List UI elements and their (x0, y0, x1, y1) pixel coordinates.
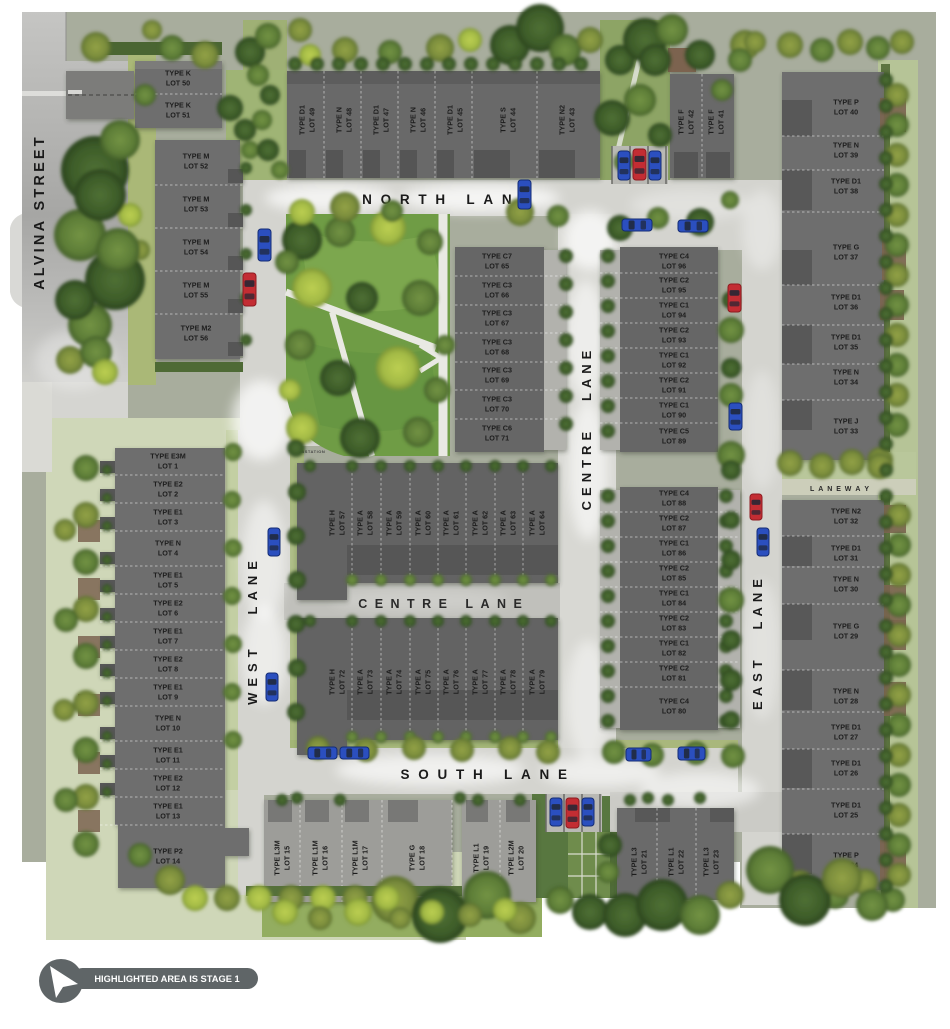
svg-text:LOT 2: LOT 2 (158, 490, 178, 499)
svg-text:TYPE F: TYPE F (707, 109, 716, 135)
svg-text:LOT 49: LOT 49 (308, 108, 317, 132)
svg-text:LOT 96: LOT 96 (662, 262, 686, 271)
svg-text:TYPE A: TYPE A (471, 510, 480, 536)
svg-text:LOT 71: LOT 71 (485, 434, 509, 443)
svg-text:TYPE D1: TYPE D1 (831, 293, 861, 302)
svg-text:LOT 43: LOT 43 (568, 108, 577, 132)
svg-text:TYPE L1: TYPE L1 (667, 847, 676, 876)
svg-text:LOT 46: LOT 46 (419, 108, 428, 132)
svg-text:TYPE M2: TYPE M2 (181, 324, 212, 333)
svg-text:LOT 84: LOT 84 (662, 599, 686, 608)
svg-text:LOT 94: LOT 94 (662, 311, 686, 320)
svg-text:TYPE C4: TYPE C4 (659, 252, 689, 261)
svg-text:LOT 66: LOT 66 (485, 291, 509, 300)
svg-text:TYPE L3: TYPE L3 (630, 847, 639, 876)
svg-text:LOT 54: LOT 54 (184, 248, 208, 257)
svg-text:TYPE A: TYPE A (499, 669, 508, 695)
svg-text:TYPE E1: TYPE E1 (153, 571, 183, 580)
svg-text:HIGHLIGHTED AREA IS STAGE 1: HIGHLIGHTED AREA IS STAGE 1 (94, 974, 239, 984)
svg-text:TYPE A: TYPE A (528, 510, 537, 536)
svg-text:TYPE D1: TYPE D1 (831, 723, 861, 732)
svg-text:TYPE N: TYPE N (833, 575, 859, 584)
svg-text:S O U T H L A N E: S O U T H L A N E (400, 767, 569, 782)
svg-text:TYPE M: TYPE M (183, 195, 210, 204)
svg-text:TYPE C3: TYPE C3 (482, 309, 512, 318)
svg-text:LOT 4: LOT 4 (158, 549, 178, 558)
svg-text:TYPE A: TYPE A (442, 510, 451, 536)
svg-text:TYPE A: TYPE A (499, 510, 508, 536)
svg-text:LOT 78: LOT 78 (509, 670, 518, 694)
svg-text:TYPE C2: TYPE C2 (659, 376, 689, 385)
svg-text:LOT 48: LOT 48 (345, 108, 354, 132)
svg-text:TYPE C1: TYPE C1 (659, 639, 689, 648)
svg-text:LOT 38: LOT 38 (834, 187, 858, 196)
svg-text:TYPE G: TYPE G (408, 844, 417, 871)
svg-text:LOT 68: LOT 68 (485, 348, 509, 357)
svg-text:LOT 3: LOT 3 (158, 518, 178, 527)
svg-text:TYPE N: TYPE N (833, 368, 859, 377)
svg-text:LOT 55: LOT 55 (184, 291, 208, 300)
svg-text:LOT 45: LOT 45 (456, 108, 465, 132)
svg-text:LOT 59: LOT 59 (395, 511, 404, 535)
svg-text:LOT 62: LOT 62 (481, 511, 490, 535)
svg-text:TYPE C2: TYPE C2 (659, 514, 689, 523)
svg-text:LOT 57: LOT 57 (338, 511, 347, 535)
svg-text:LOT 73: LOT 73 (366, 670, 375, 694)
svg-text:LOT 67: LOT 67 (485, 319, 509, 328)
svg-text:LOT 95: LOT 95 (662, 286, 686, 295)
svg-text:TYPE D1: TYPE D1 (298, 105, 307, 135)
svg-text:TYPE N: TYPE N (335, 107, 344, 133)
svg-text:LOT 53: LOT 53 (184, 205, 208, 214)
svg-text:TYPE P2: TYPE P2 (153, 847, 183, 856)
svg-text:TYPE E1: TYPE E1 (153, 508, 183, 517)
svg-text:LOT 42: LOT 42 (687, 110, 696, 134)
svg-text:LOT 11: LOT 11 (156, 756, 180, 765)
svg-text:TYPE A: TYPE A (442, 669, 451, 695)
svg-text:TYPE D1: TYPE D1 (831, 333, 861, 342)
svg-text:LOT 37: LOT 37 (834, 253, 858, 262)
svg-text:LOT 70: LOT 70 (485, 405, 509, 414)
svg-text:LOT 36: LOT 36 (834, 303, 858, 312)
svg-text:LOT 16: LOT 16 (321, 846, 330, 870)
svg-text:TYPE M: TYPE M (183, 152, 210, 161)
svg-text:LOT 19: LOT 19 (482, 846, 491, 870)
svg-text:LOT 88: LOT 88 (662, 499, 686, 508)
svg-text:TYPE E3M: TYPE E3M (150, 452, 186, 461)
svg-text:TYPE N2: TYPE N2 (558, 105, 567, 135)
svg-text:TYPE C1: TYPE C1 (659, 589, 689, 598)
svg-text:TYPE C5: TYPE C5 (659, 427, 689, 436)
svg-text:LOT 15: LOT 15 (283, 846, 292, 870)
svg-text:TYPE C4: TYPE C4 (659, 489, 689, 498)
svg-text:TYPE C3: TYPE C3 (482, 338, 512, 347)
svg-text:LOT 33: LOT 33 (834, 427, 858, 436)
svg-text:LOT 63: LOT 63 (509, 511, 518, 535)
svg-text:LOT 40: LOT 40 (834, 108, 858, 117)
svg-text:TYPE J: TYPE J (834, 417, 859, 426)
svg-text:TYPE H: TYPE H (328, 510, 337, 536)
svg-text:LOT 22: LOT 22 (677, 850, 686, 874)
svg-text:LOT 60: LOT 60 (424, 511, 433, 535)
svg-text:TYPE K: TYPE K (165, 101, 192, 110)
svg-text:TYPE N2: TYPE N2 (831, 507, 861, 516)
svg-text:LOT 31: LOT 31 (834, 554, 858, 563)
svg-text:LOT 20: LOT 20 (517, 846, 526, 870)
svg-text:ALVINA STREET: ALVINA STREET (32, 134, 48, 290)
svg-text:TYPE C2: TYPE C2 (659, 664, 689, 673)
svg-text:TYPE N: TYPE N (833, 687, 859, 696)
svg-text:LOT 50: LOT 50 (166, 79, 190, 88)
svg-text:TYPE A: TYPE A (414, 510, 423, 536)
svg-text:TYPE E1: TYPE E1 (153, 683, 183, 692)
svg-text:TYPE D1: TYPE D1 (372, 105, 381, 135)
svg-text:LOT 14: LOT 14 (156, 857, 180, 866)
svg-text:LOT 34: LOT 34 (834, 378, 858, 387)
svg-text:LOT 13: LOT 13 (156, 812, 180, 821)
svg-text:TYPE P: TYPE P (833, 851, 859, 860)
svg-text:TYPE N: TYPE N (155, 539, 181, 548)
svg-text:WEST LANE: WEST LANE (245, 555, 260, 705)
svg-text:LOT 92: LOT 92 (662, 361, 686, 370)
svg-text:LOT 74: LOT 74 (395, 670, 404, 694)
svg-text:LOT 79: LOT 79 (538, 670, 547, 694)
svg-text:TYPE C3: TYPE C3 (482, 395, 512, 404)
svg-text:TYPE M: TYPE M (183, 281, 210, 290)
svg-text:LOT 56: LOT 56 (184, 334, 208, 343)
svg-text:LOT 12: LOT 12 (156, 784, 180, 793)
svg-text:LOT 7: LOT 7 (158, 637, 178, 646)
svg-text:LOT 93: LOT 93 (662, 336, 686, 345)
svg-text:TYPE C2: TYPE C2 (659, 564, 689, 573)
svg-text:EAST LANE: EAST LANE (750, 574, 765, 710)
svg-text:LOT 1: LOT 1 (158, 462, 178, 471)
svg-text:LOT 44: LOT 44 (509, 108, 518, 132)
svg-text:LOT 64: LOT 64 (538, 511, 547, 535)
svg-text:TYPE E2: TYPE E2 (153, 655, 183, 664)
svg-text:TYPE N: TYPE N (833, 141, 859, 150)
svg-text:LOT 85: LOT 85 (662, 574, 686, 583)
svg-text:LOT 83: LOT 83 (662, 624, 686, 633)
svg-text:TYPE G: TYPE G (833, 243, 860, 252)
svg-text:TYPE E2: TYPE E2 (153, 480, 183, 489)
svg-text:TYPE C1: TYPE C1 (659, 539, 689, 548)
svg-text:LOT 77: LOT 77 (481, 670, 490, 694)
svg-text:LOT 6: LOT 6 (158, 609, 178, 618)
svg-text:LOT 23: LOT 23 (712, 850, 721, 874)
svg-text:LOT 8: LOT 8 (158, 665, 178, 674)
svg-text:LOT 86: LOT 86 (662, 549, 686, 558)
svg-text:LOT 32: LOT 32 (834, 517, 858, 526)
svg-text:LOT 28: LOT 28 (834, 697, 858, 706)
svg-text:TYPE L2M: TYPE L2M (507, 840, 516, 875)
svg-text:TYPE G: TYPE G (833, 622, 860, 631)
svg-text:LOT 89: LOT 89 (662, 437, 686, 446)
svg-text:LOT 91: LOT 91 (662, 386, 686, 395)
svg-text:TYPE K: TYPE K (165, 69, 192, 78)
svg-text:LOT 25: LOT 25 (834, 811, 858, 820)
svg-text:TYPE L1M: TYPE L1M (311, 840, 320, 875)
svg-text:TYPE A: TYPE A (356, 510, 365, 536)
svg-text:TYPE E1: TYPE E1 (153, 802, 183, 811)
svg-text:TYPE P: TYPE P (833, 98, 859, 107)
svg-text:LOT 47: LOT 47 (382, 108, 391, 132)
svg-text:LOT 80: LOT 80 (662, 707, 686, 716)
svg-text:TYPE C2: TYPE C2 (659, 276, 689, 285)
svg-text:LOT 90: LOT 90 (662, 411, 686, 420)
svg-text:LOT 52: LOT 52 (184, 162, 208, 171)
svg-text:LOT 30: LOT 30 (834, 585, 858, 594)
svg-text:LOT 87: LOT 87 (662, 524, 686, 533)
svg-text:LOT 27: LOT 27 (834, 733, 858, 742)
svg-text:TYPE A: TYPE A (471, 669, 480, 695)
svg-text:TYPE H: TYPE H (328, 669, 337, 695)
svg-text:LOT 41: LOT 41 (717, 110, 726, 134)
svg-text:TYPE E1: TYPE E1 (153, 746, 183, 755)
svg-text:TYPE C3: TYPE C3 (482, 281, 512, 290)
svg-text:LOT 51: LOT 51 (166, 111, 190, 120)
svg-text:TYPE C2: TYPE C2 (659, 326, 689, 335)
svg-text:C E N T R E L A N E: C E N T R E L A N E (358, 597, 524, 611)
svg-text:CENTRE LANE: CENTRE LANE (579, 346, 594, 511)
svg-text:TYPE L1M: TYPE L1M (351, 840, 360, 875)
svg-text:TYPE C4: TYPE C4 (659, 697, 689, 706)
svg-text:LOT 17: LOT 17 (361, 846, 370, 870)
svg-text:LOT 10: LOT 10 (156, 724, 180, 733)
svg-text:LOT 26: LOT 26 (834, 769, 858, 778)
svg-text:LOT 58: LOT 58 (366, 511, 375, 535)
svg-text:TYPE A: TYPE A (528, 669, 537, 695)
svg-text:TYPE L1: TYPE L1 (472, 843, 481, 872)
svg-text:LOT 75: LOT 75 (424, 670, 433, 694)
svg-text:TYPE L3: TYPE L3 (702, 847, 711, 876)
svg-text:LOT 81: LOT 81 (662, 674, 686, 683)
svg-text:TYPE A: TYPE A (385, 510, 394, 536)
svg-text:LOT 61: LOT 61 (452, 511, 461, 535)
svg-text:TYPE D1: TYPE D1 (446, 105, 455, 135)
svg-text:LOT 21: LOT 21 (640, 850, 649, 874)
svg-text:TYPE N: TYPE N (409, 107, 418, 133)
svg-text:TYPE N: TYPE N (155, 714, 181, 723)
svg-text:LOT 72: LOT 72 (338, 670, 347, 694)
svg-text:LOT 39: LOT 39 (834, 151, 858, 160)
svg-text:L A N E W A Y: L A N E W A Y (810, 486, 870, 493)
svg-text:TYPE D1: TYPE D1 (831, 759, 861, 768)
svg-text:TYPE D1: TYPE D1 (831, 544, 861, 553)
svg-text:TYPE A: TYPE A (385, 669, 394, 695)
svg-text:TYPE E1: TYPE E1 (153, 627, 183, 636)
svg-text:LOT 65: LOT 65 (485, 262, 509, 271)
svg-text:TYPE E2: TYPE E2 (153, 599, 183, 608)
svg-text:TYPE E2: TYPE E2 (153, 774, 183, 783)
svg-text:LOT 5: LOT 5 (158, 581, 178, 590)
svg-text:LOT 82: LOT 82 (662, 649, 686, 658)
svg-text:LOT 69: LOT 69 (485, 376, 509, 385)
svg-text:TYPE C1: TYPE C1 (659, 351, 689, 360)
svg-text:TYPE F: TYPE F (677, 109, 686, 135)
svg-text:TYPE S: TYPE S (499, 107, 508, 133)
svg-text:TYPE C1: TYPE C1 (659, 301, 689, 310)
svg-text:TYPE A: TYPE A (414, 669, 423, 695)
svg-text:LOT 18: LOT 18 (418, 846, 427, 870)
svg-text:LOT 9: LOT 9 (158, 693, 178, 702)
svg-text:LOT 35: LOT 35 (834, 343, 858, 352)
svg-text:LOT 76: LOT 76 (452, 670, 461, 694)
svg-text:TYPE A: TYPE A (356, 669, 365, 695)
svg-text:TYPE C7: TYPE C7 (482, 252, 512, 261)
svg-text:LOT 29: LOT 29 (834, 632, 858, 641)
svg-text:TYPE C3: TYPE C3 (482, 366, 512, 375)
svg-text:TYPE D1: TYPE D1 (831, 801, 861, 810)
svg-text:TYPE C6: TYPE C6 (482, 424, 512, 433)
svg-text:TYPE M: TYPE M (183, 238, 210, 247)
svg-text:TYPE C1: TYPE C1 (659, 401, 689, 410)
svg-text:TYPE L3M: TYPE L3M (273, 840, 282, 875)
svg-text:TYPE D1: TYPE D1 (831, 177, 861, 186)
svg-text:TYPE C2: TYPE C2 (659, 614, 689, 623)
